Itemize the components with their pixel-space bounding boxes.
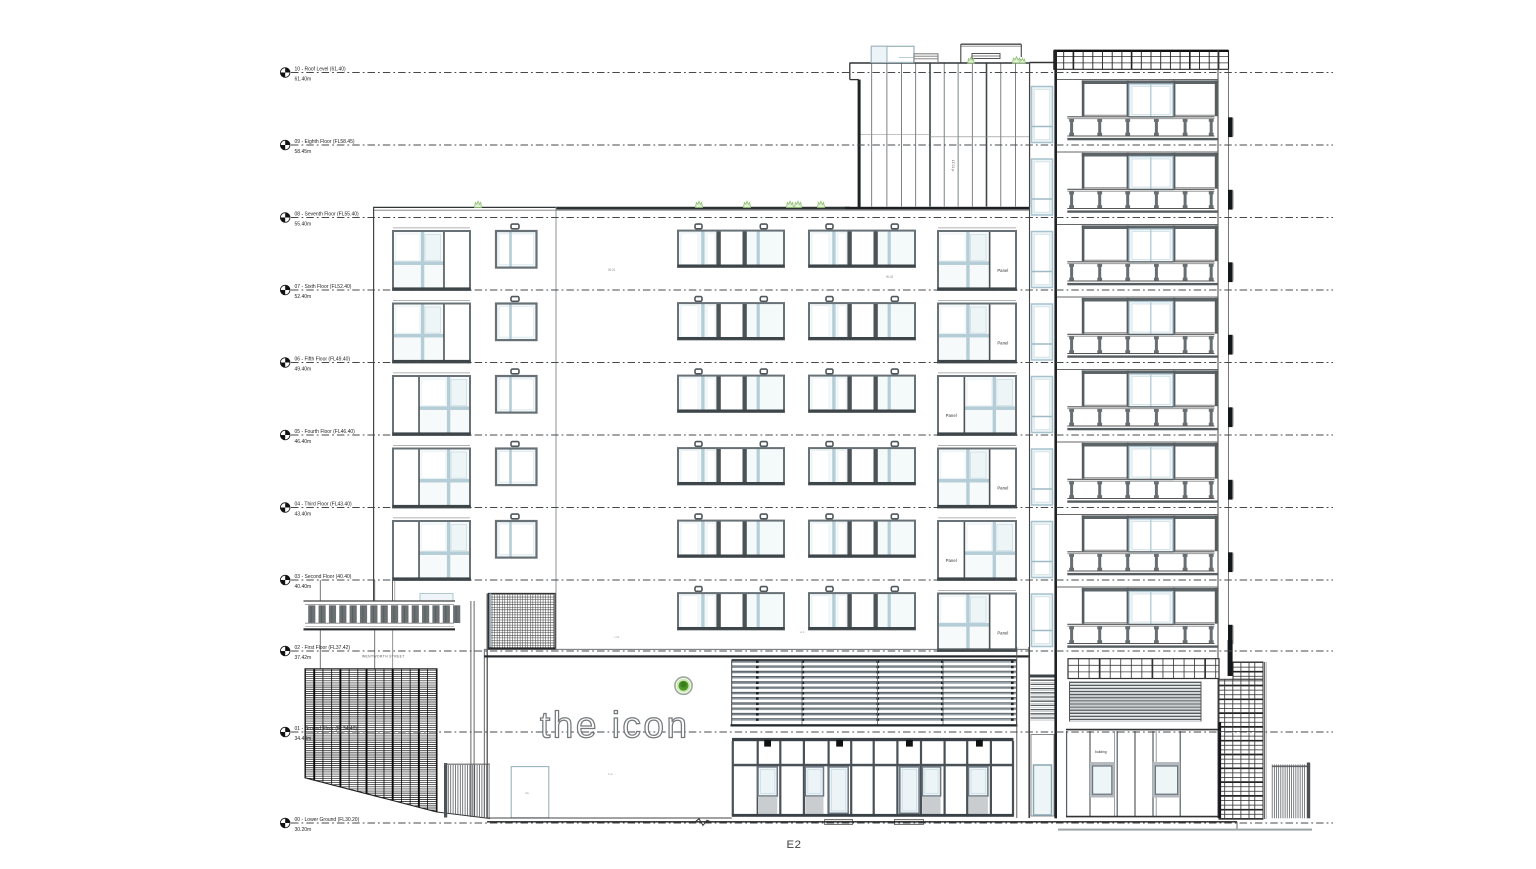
svg-text:00 - Lower Ground (FL30.20): 00 - Lower Ground (FL30.20) [295, 817, 360, 823]
svg-text:06 - Fifth Floor (FL49.40): 06 - Fifth Floor (FL49.40) [295, 356, 351, 362]
svg-text:Panel: Panel [946, 558, 957, 563]
svg-text:46.40m: 46.40m [295, 439, 312, 445]
svg-text:58.45m: 58.45m [295, 149, 312, 155]
svg-text:Panel: Panel [997, 486, 1008, 491]
svg-text:49.40m: 49.40m [295, 366, 312, 372]
svg-text:WENTWORTH STREET: WENTWORTH STREET [362, 655, 405, 659]
svg-text:07 - Sixth Floor (FL52.40): 07 - Sixth Floor (FL52.40) [295, 284, 352, 290]
svg-text:01 - Ground Floor (FL34.40): 01 - Ground Floor (FL34.40) [295, 726, 358, 732]
svg-text:W.01: W.01 [608, 268, 615, 272]
svg-text:04 - Third Floor (FL43.40): 04 - Third Floor (FL43.40) [295, 501, 352, 507]
svg-text:10 - Roof Level (61.40): 10 - Roof Level (61.40) [295, 66, 346, 72]
svg-text:Panel: Panel [997, 341, 1008, 346]
svg-text:55.40m: 55.40m [295, 221, 312, 227]
svg-text:E2: E2 [787, 839, 802, 851]
svg-text:43.40m: 43.40m [295, 511, 312, 517]
svg-text:02 - First Floor (FL37.42): 02 - First Floor (FL37.42) [295, 645, 351, 651]
svg-text:W.02: W.02 [886, 275, 893, 279]
svg-text:61.40m: 61.40m [295, 76, 312, 82]
svg-text:LT-01 p: LT-01 p [951, 160, 955, 171]
svg-text:w.1: w.1 [800, 630, 805, 634]
svg-text:09 - Eighth Floor (FL58.45): 09 - Eighth Floor (FL58.45) [295, 139, 355, 145]
svg-text:Panel: Panel [997, 268, 1008, 273]
svg-text:52.40m: 52.40m [295, 294, 312, 300]
svg-text:08 - Seventh Floor (FL55.40): 08 - Seventh Floor (FL55.40) [295, 211, 360, 217]
svg-text:the icon: the icon [540, 705, 690, 746]
svg-text:v.14: v.14 [614, 635, 620, 639]
svg-text:building: building [1095, 750, 1107, 754]
svg-text:05 - Fourth Floor (FL46.40): 05 - Fourth Floor (FL46.40) [295, 429, 356, 435]
svg-text:34.40m: 34.40m [295, 736, 312, 742]
svg-text:37.42m: 37.42m [295, 655, 312, 661]
svg-text:30.20m: 30.20m [295, 827, 312, 833]
svg-text:Panel: Panel [997, 631, 1008, 636]
svg-text:03 - Second Floor (40.40): 03 - Second Floor (40.40) [295, 574, 352, 580]
svg-text:Panel: Panel [946, 413, 957, 418]
svg-text:40.40m: 40.40m [295, 584, 312, 590]
